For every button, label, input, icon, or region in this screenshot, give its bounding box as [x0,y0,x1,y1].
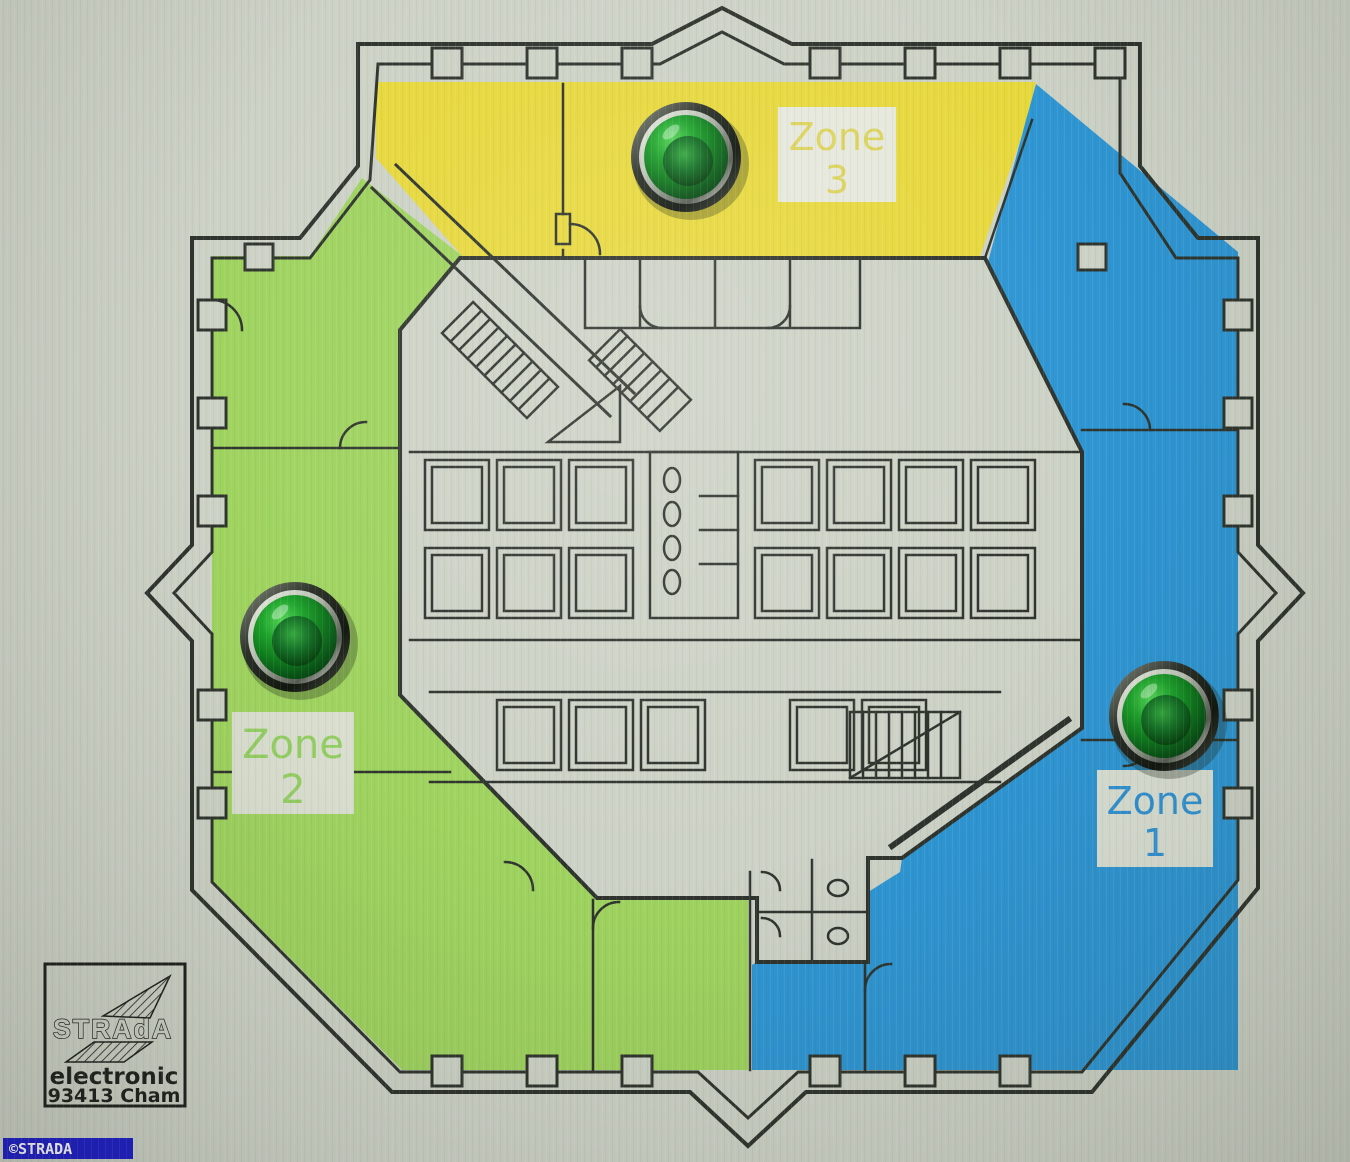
logo-brand-text: STRAdA [53,1014,173,1044]
strada-arrow-icon [103,976,170,1018]
logo-city-text: 93413 Cham [48,1085,181,1107]
zone-2-label: Zone 2 [232,712,354,814]
strada-logo: STRAdA electronic 93413 Cham [45,964,185,1107]
zone-2-label-text: Zone [242,722,344,768]
strada-parallelogram-icon [66,1042,152,1062]
zone-1-label: Zone 1 [1097,770,1213,867]
floor-plan-panel: Zone 3 Zone 2 Zone 1 STRAdA electronic 9… [0,0,1350,1162]
zone-1-label-text: Zone [1107,779,1204,823]
copyright-watermark: ©STRADA [3,1138,133,1159]
zone-3-label: Zone 3 [778,107,896,202]
zone-3-label-text: Zone [789,115,886,159]
watermark-text: ©STRADA [9,1140,72,1158]
zone-2-label-number: 2 [280,767,305,813]
mimic-panel: { "panel": { "background_color": "#cdd2c… [0,0,1350,1162]
zone-3-label-number: 3 [825,158,849,202]
zone-1-label-number: 1 [1143,821,1167,865]
